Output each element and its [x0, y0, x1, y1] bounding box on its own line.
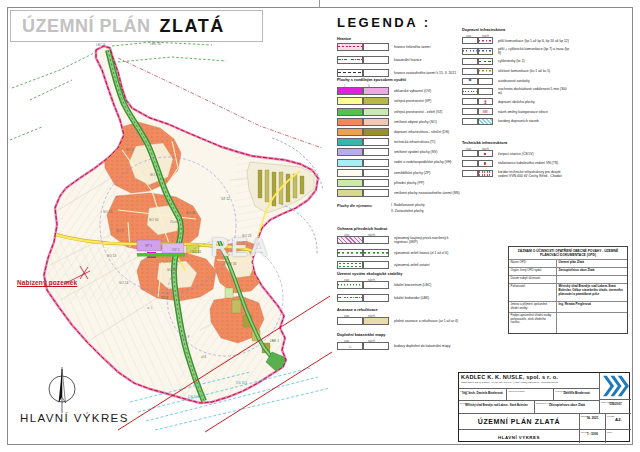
legend-item-label: pěší komunikace (kp 1 až kp 6, kp 10 až …	[498, 39, 569, 43]
legend-item-label: občanské vybavení (OV)	[394, 89, 431, 93]
legend-section-asanace: Asanace a rekultivace stavnávrh plošné a…	[337, 307, 461, 330]
legend-item: pěší + cyklistická komunikace (kp 7) a t…	[462, 47, 592, 55]
legend-title: LEGENDA :	[337, 15, 431, 30]
map-parcel-label: Zlatá	[170, 220, 177, 224]
legend-swatch	[363, 189, 389, 197]
legend-item: trafostanice kabelového vedení VN (TS)	[462, 160, 592, 167]
legend-section-header: Plochy dle významu:	[337, 204, 373, 208]
legend-item-label: smíšené výrobní plochy (SV)	[394, 150, 437, 154]
legend-swatch	[363, 56, 389, 64]
legend-item-label: trafostanice kabelového vedení VN (TS)	[498, 161, 558, 165]
legend-swatch	[337, 281, 363, 289]
legend-section-header: Hranice	[337, 36, 461, 41]
table-row-value	[557, 313, 627, 333]
map-parcel-label: SO 22	[167, 268, 177, 272]
legend-swatch	[363, 236, 389, 244]
offered-plot-annotation: Nabízený pozemek	[17, 279, 77, 286]
map-parcel-label: SO 14	[119, 281, 129, 285]
legend-item-label: přírodní plochy (PP)	[394, 181, 424, 185]
field-value: Ing. arch. Daniela Binderová	[459, 392, 506, 396]
table-row: Název OPD:Územní plán Zlatá	[509, 259, 627, 267]
field-label: Hlavní projektant:	[507, 389, 553, 392]
legend-item-label: autobusové zastávky	[498, 79, 530, 83]
drawing-name: HLAVNÍ VÝKRES	[459, 435, 579, 440]
legend-swatch	[337, 249, 363, 257]
legend-item: smíšené plochy nezastavěného území (SN)	[337, 189, 461, 197]
legend-section-header: Územní systém ekologické stability	[337, 271, 461, 276]
legend-item-label: pěší + cyklistická komunikace (kp 7) a t…	[498, 47, 570, 55]
legend-item-label: smíšené plochy nezastavěného území (SN)	[394, 191, 460, 195]
legend-item-label: zemědělské plochy (ZP)	[394, 171, 430, 175]
legend-item-label: účelové komunikace (ku 1 až ku 5)	[498, 69, 550, 73]
table-row: Podpis oprávněné úřední osoby pořizovate…	[509, 312, 627, 333]
legend-section-header: Technická infrastruktura	[462, 140, 592, 145]
map-parcel-label: SO 9	[116, 229, 124, 233]
legend-item-label: významný krajinný prvek navržený k regis…	[394, 236, 461, 244]
table-row: Jméno a příjmení oprávněné úřední osoby:…	[509, 301, 627, 312]
legend-section-plochy: Plochy s rozdílným způsobem využití I.II…	[337, 77, 461, 199]
legend-swatch	[337, 138, 363, 146]
legend-swatch	[478, 88, 494, 95]
drawing-caption: HLAVNÍ VÝKRES	[20, 412, 129, 424]
table-row-label: Podpis oprávněné úřední osoby pořizovate…	[509, 313, 557, 333]
legend-item: zemědělské plochy (ZP)	[337, 169, 461, 177]
table-row-value	[557, 276, 627, 283]
legend-swatch	[462, 58, 478, 65]
legend-swatch	[337, 108, 363, 116]
legend-item: koridor technické infrastruktury pro dvo…	[462, 170, 592, 178]
legend-item-label: návrh změny kategorizace silnice	[498, 110, 548, 114]
legend-item: isochrona docházkové vzdálenosti 5 min (…	[462, 87, 592, 95]
field-value: Městský úřad Brandýs nad Labem - Stará B…	[459, 404, 534, 407]
map-parcel-label: LBK 1	[270, 339, 279, 343]
legend-swatch	[337, 179, 363, 187]
map-parcel-label: SO 19	[103, 210, 113, 214]
legend-item: katastrální hranice	[337, 56, 461, 64]
map-parcel-label: DS 101	[188, 395, 199, 399]
field-value: Zastupitelstvo obce Zlatá	[535, 404, 599, 408]
legend-swatch	[363, 138, 389, 146]
legend-item: návrh změny kategorizace silnice	[462, 108, 592, 115]
map-parcel-label: LBK 36	[150, 42, 161, 46]
table-row-value: Městský úřad Brandýs nad Labem-Stará Bol…	[557, 284, 627, 301]
legend-section-doprava: Dopravní infrastruktura stavnávrh pěší k…	[462, 27, 592, 128]
legend-section-vyznam: Plochy dle významu: I. Stabilizované plo…	[337, 204, 461, 214]
table-row: Pořizovatel:Městský úřad Brandýs nad Lab…	[509, 283, 627, 301]
map-parcel-label: SO 41	[192, 250, 202, 254]
legend-swatch	[462, 68, 478, 75]
legend-swatch	[337, 317, 363, 325]
legend-item-label: technická infrastruktura (TI)	[394, 140, 435, 144]
legend-swatch	[337, 148, 363, 156]
legend-swatch	[363, 342, 389, 350]
table-row-label: Orgán, který OPD vydal:	[509, 268, 557, 275]
legend-swatch	[363, 108, 389, 116]
table-row-value: Územní plán Zlatá	[557, 260, 627, 267]
legend-swatch	[478, 108, 494, 115]
legend-item-label: smíšené obytné plochy (SO)	[394, 120, 437, 124]
legend-swatch	[337, 69, 363, 77]
legend-swatch	[478, 160, 494, 167]
legend-item: technická infrastruktura (TI)	[337, 138, 461, 146]
legend-swatch	[363, 261, 389, 269]
legend-item-label: cyklostezky (kc 1)	[498, 59, 525, 63]
legend-item: významný krajinný prvek navržený k regis…	[337, 236, 461, 244]
legend-item-label: lokální biocentrum (LBC)	[394, 283, 431, 287]
legend-item-label: lokální biokoridor (LBK)	[394, 296, 429, 300]
table-row: Datum nabytí účinnosti:	[509, 275, 627, 283]
legend-section-header: Dopravní infrastruktura	[462, 27, 592, 32]
legend-item: veřejná prostranství (VP)	[337, 97, 461, 105]
legend-swatch	[363, 128, 389, 136]
table-row-label: Pořizovatel:	[509, 284, 557, 301]
legend-swatch	[462, 160, 478, 167]
legend-item-label: veřejná prostranství - zeleň (VZ)	[394, 110, 442, 114]
legend-section-header: Plochy s rozdílným způsobem využití	[337, 77, 461, 82]
legend-section-technika: Technická infrastruktura stavnávrh čerpa…	[462, 140, 592, 181]
legend-item: čerpací stanice (ČSOV)	[462, 150, 592, 157]
table-title: ZÁZNAM O ÚČINNOSTI OPATŘENÍ OBECNÉ POVAH…	[509, 247, 627, 259]
map-parcel-label: zl 4	[201, 355, 206, 359]
map-parcel-label: ar 1	[147, 306, 153, 310]
legend-swatch	[363, 87, 389, 95]
map-parcel-label: VZ 2	[161, 296, 168, 300]
legend-item-label: dopravní obsluha plochy	[498, 100, 535, 104]
legend-item: významná zeleň liniová (zl 1 až zl 6)	[337, 249, 461, 257]
legend-item: významná zeleň ostatní	[337, 261, 461, 269]
legend-swatch	[337, 236, 363, 244]
legend-swatch	[478, 58, 494, 65]
title-block: KADLEC K. K. NUSLE, spol. s r. o. Chaber…	[458, 372, 630, 442]
legend-item: občanské vybavení (OV)	[337, 87, 461, 95]
map-parcel-label: SO 2	[126, 148, 134, 152]
map-parcel-label: SO 10	[149, 218, 159, 222]
north-arrow-icon	[44, 363, 80, 417]
legend-item: koridory dopravních staveb	[462, 118, 592, 125]
legend-item: veřejná prostranství - zeleň (VZ)	[337, 108, 461, 116]
legend-swatch	[337, 261, 363, 269]
legend-swatch	[363, 179, 389, 187]
map-content	[40, 50, 330, 410]
legend-swatch	[462, 170, 478, 177]
legend-column-right: Dopravní infrastruktura stavnávrh pěší k…	[462, 0, 592, 230]
legend-swatch	[363, 294, 389, 302]
legend-swatch	[478, 78, 494, 85]
registration-tick	[319, 0, 320, 8]
legend-item-label: významná zeleň liniová (zl 1 až zl 6)	[394, 251, 448, 255]
legend-swatch	[478, 68, 494, 75]
legend-item-label: čerpací stanice (ČSOV)	[498, 152, 534, 156]
table-row-label: Jméno a příjmení oprávněné úřední osoby:	[509, 302, 557, 312]
field-value: Daniela Binderová	[554, 392, 599, 396]
legend-swatch	[337, 97, 363, 105]
legend-swatch	[462, 88, 478, 95]
legend-swatch	[363, 169, 389, 177]
legend-item-label: hranice zastavěného území k 15. 3. 2021	[394, 71, 456, 75]
legend-item-label: dopravní infrastruktura - silniční (DS)	[394, 130, 449, 134]
legend-column-left: LEGENDA : Hranice hranice řešeného území…	[337, 0, 461, 452]
legend-item: smíšené výrobní plochy (SV)	[337, 148, 461, 156]
legend-swatch	[363, 118, 389, 126]
legend-item-label: isochrona docházkové vzdálenosti 5 min (…	[498, 87, 570, 95]
table-row-label: Datum nabytí účinnosti:	[509, 276, 557, 283]
legend-swatch	[478, 150, 494, 157]
page-title-prefix: ÚZEMNÍ PLÁN	[22, 16, 151, 37]
field-value: 06. 2021	[580, 417, 605, 421]
field-value: 036/2007	[600, 403, 631, 407]
legend-swatch	[478, 118, 494, 125]
legend-section-ochrana: Ochrana přírodních hodnot stavnávrh význ…	[337, 226, 461, 274]
legend-item: přírodní plochy (PP)	[337, 179, 461, 187]
legend-item: účelové komunikace (ku 1 až ku 5)	[462, 68, 592, 75]
legend-swatch	[337, 87, 363, 95]
legend-section-header: Ochrana přírodních hodnot	[337, 226, 461, 231]
legend-swatch	[337, 43, 363, 51]
legend-swatch	[478, 170, 494, 177]
legend-swatch	[363, 281, 389, 289]
legend-item: hranice zastavěného území k 15. 3. 2021	[337, 69, 461, 77]
legend-item-label: koridory dopravních staveb	[498, 119, 539, 123]
legend-section-header: Asanace a rekultivace	[337, 307, 461, 312]
map-parcel-label: VZ 12	[221, 197, 230, 201]
legend-swatch	[478, 48, 494, 55]
legend-item-label: veřejná prostranství (VP)	[394, 99, 432, 103]
legend-item: smíšené obytné plochy (SO)	[337, 118, 461, 126]
legend-swatch	[337, 342, 363, 350]
legend-item: lokální biokoridor (LBK)	[337, 294, 461, 302]
legend-item: cyklostezky (kc 1)	[462, 58, 592, 65]
legend-swatch	[462, 98, 478, 105]
legend-item-label: vodní a vodohospodářské plochy (VH)	[394, 160, 452, 164]
page-title: ÚZEMNÍ PLÁN ZLATÁ	[10, 10, 263, 42]
map-parcel-label: SO 16	[186, 211, 196, 215]
legend-item-label: budovy doplněné do katastrální mapy	[394, 344, 450, 348]
legend-swatch	[363, 148, 389, 156]
map-parcel-label: SO 13	[107, 254, 117, 258]
legend-swatch	[363, 69, 389, 77]
field-value: A2.	[606, 417, 631, 423]
legend-section-uses: Územní systém ekologické stability stavn…	[337, 271, 461, 306]
legend-item-label: významná zeleň ostatní	[394, 263, 430, 267]
legend-swatch	[462, 118, 478, 125]
table-row-value: Zastupitelstvo obce Zlatá	[557, 268, 627, 275]
map-parcel-label: SO 56	[227, 262, 237, 266]
legend-swatch	[462, 78, 478, 85]
map-parcel-label: OV 1	[172, 248, 180, 252]
legend-section-hranice: Hranice hranice řešeného územíkatastráln…	[337, 36, 461, 82]
legend-swatch	[478, 98, 494, 105]
table-row-label: Název OPD:	[509, 260, 557, 267]
table-row-value: Ing. Renata Perglerová	[557, 302, 627, 312]
legend-swatch	[337, 159, 363, 167]
legend-item-label: plošné asanace a rekultivace (ar 1 až ar…	[394, 319, 458, 323]
legend-swatch	[363, 249, 389, 257]
effectiveness-record-table: ZÁZNAM O ÚČINNOSTI OPATŘENÍ OBECNÉ POVAH…	[508, 246, 628, 334]
field-value: 1 : 5000	[580, 433, 605, 437]
legend-swatch	[363, 317, 389, 325]
legend-item: dopravní infrastruktura - silniční (DS)	[337, 128, 461, 136]
legend-item: autobusové zastávky	[462, 78, 592, 85]
legend-swatch	[337, 56, 363, 64]
map-parcel-label: DS 101	[236, 381, 247, 385]
legend-section-doplneni: Doplnění katastrální mapy stavnávrh budo…	[337, 332, 461, 355]
legend-swatch	[462, 150, 478, 157]
kadlec-logo	[601, 374, 631, 398]
legend-swatch	[337, 294, 363, 302]
company-name: KADLEC K. K. NUSLE, spol. s r. o.	[459, 373, 599, 380]
map-parcel-label: LBC 9	[96, 43, 105, 47]
legend-item: lokální biocentrum (LBC)	[337, 281, 461, 289]
legend-item: vodní a vodohospodářské plochy (VH)	[337, 159, 461, 167]
map-parcel-label: SO 4	[150, 173, 158, 177]
legend-item: plošné asanace a rekultivace (ar 1 až ar…	[337, 317, 461, 325]
legend-swatch	[337, 189, 363, 197]
legend-swatch	[363, 159, 389, 167]
legend-swatch	[478, 37, 494, 44]
document-title: ÚZEMNÍ PLÁN ZLATÁ	[459, 418, 579, 425]
legend-item: budovy doplněné do katastrální mapy	[337, 342, 461, 350]
legend-swatch	[337, 169, 363, 177]
legend-item: pěší komunikace (kp 1 až kp 6, kp 10 až …	[462, 37, 592, 44]
legend-item-label: katastrální hranice	[394, 58, 422, 62]
legend-item: dopravní obsluha plochy	[462, 98, 592, 105]
field-label: Číslo:	[606, 430, 631, 433]
legend-swatch	[462, 37, 478, 44]
legend-item-label: II. Zastavitelné plochy	[391, 209, 461, 215]
map-parcel-label: VP 1	[145, 244, 152, 248]
legend-swatch	[363, 43, 389, 51]
table-row: Orgán, který OPD vydal:Zastupitelstvo ob…	[509, 267, 627, 275]
map-parcel-label: ko 8	[183, 335, 189, 339]
legend-section-header: Doplnění katastrální mapy	[337, 332, 461, 337]
legend-swatch	[337, 118, 363, 126]
legend-swatch	[337, 128, 363, 136]
legend-item-label: koridor technické infrastruktury pro dvo…	[498, 170, 570, 178]
page-title-name: ZLATÁ	[160, 16, 225, 37]
legend-swatch	[363, 97, 389, 105]
legend-swatch	[462, 48, 478, 55]
plan-sheet: ÚZEMNÍ PLÁN ZLATÁ	[0, 0, 640, 452]
legend-item-label: hranice řešeného území	[394, 45, 430, 49]
legend-swatch	[462, 108, 478, 115]
legend-item: hranice řešeného území	[337, 43, 461, 51]
watermark: REA	[211, 233, 270, 262]
company-info: Chaberská 3, 182 00 Praha 8 · tel./fax: …	[459, 380, 599, 383]
